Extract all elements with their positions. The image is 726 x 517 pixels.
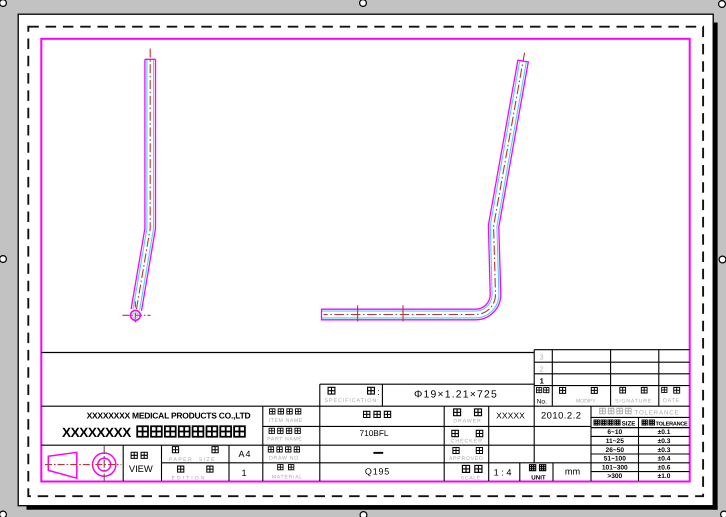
svg-text:11~25: 11~25: [606, 438, 624, 445]
svg-text:SIZE: SIZE: [622, 420, 636, 427]
svg-text:TOLERANCE: TOLERANCE: [655, 421, 688, 427]
svg-text:±1.0: ±1.0: [658, 473, 671, 480]
svg-text:DRAWER: DRAWER: [453, 419, 481, 425]
svg-text:A4: A4: [238, 449, 251, 459]
svg-text:No.: No.: [537, 399, 547, 406]
svg-text:ITEM NAME: ITEM NAME: [269, 418, 303, 424]
svg-text:PART NAME: PART NAME: [267, 436, 302, 442]
svg-text:3: 3: [539, 353, 543, 362]
svg-text:1 : 4: 1 : 4: [494, 468, 512, 478]
svg-text:SIGNATURE: SIGNATURE: [615, 398, 652, 404]
svg-text:XXXXXXXX: XXXXXXXX: [62, 425, 131, 440]
svg-text:DRAW NO: DRAW NO: [269, 456, 299, 462]
svg-text:CHECKER: CHECKER: [451, 438, 483, 444]
svg-text:TOLERANCE: TOLERANCE: [635, 409, 680, 416]
svg-text:710BFL: 710BFL: [359, 428, 388, 438]
svg-text:UNIT: UNIT: [531, 475, 546, 482]
svg-text:2010.2.2: 2010.2.2: [541, 410, 582, 421]
svg-text:2: 2: [539, 364, 543, 373]
svg-text:>300: >300: [607, 473, 622, 480]
svg-text:26~50: 26~50: [606, 447, 625, 454]
svg-text:SPECIFICATION:: SPECIFICATION:: [324, 398, 379, 404]
svg-text:±0.6: ±0.6: [658, 464, 671, 471]
svg-text:EDITION: EDITION: [171, 475, 206, 481]
svg-text:MODIFY: MODIFY: [576, 398, 596, 404]
svg-text:±0.1: ±0.1: [658, 429, 671, 436]
svg-text:mm: mm: [565, 467, 581, 477]
svg-text:APPROVED: APPROVED: [449, 456, 483, 462]
svg-text:SCALE: SCALE: [461, 475, 481, 481]
svg-text:Φ19×1.21×725: Φ19×1.21×725: [414, 390, 498, 401]
svg-text:XXXXXXXX MEDICAL PRODUCTS CO.,: XXXXXXXX MEDICAL PRODUCTS CO.,LTD: [87, 410, 251, 420]
svg-text:PAPER SIZE: PAPER SIZE: [169, 457, 216, 463]
svg-text:1: 1: [241, 468, 246, 478]
svg-text:VIEW: VIEW: [129, 463, 153, 474]
svg-text:±0.4: ±0.4: [658, 456, 671, 463]
svg-text:XXXXX: XXXXX: [496, 410, 525, 420]
svg-text:±0.3: ±0.3: [658, 438, 671, 445]
svg-text::: :: [377, 387, 380, 397]
svg-text:51~100: 51~100: [604, 456, 627, 463]
svg-text:Q195: Q195: [365, 467, 390, 477]
svg-text:MATERIAL: MATERIAL: [272, 475, 303, 481]
svg-text:DATE: DATE: [663, 398, 680, 404]
svg-text:6~10: 6~10: [607, 429, 622, 436]
svg-text:±0.3: ±0.3: [658, 447, 671, 454]
svg-text:101~300: 101~300: [602, 464, 628, 471]
